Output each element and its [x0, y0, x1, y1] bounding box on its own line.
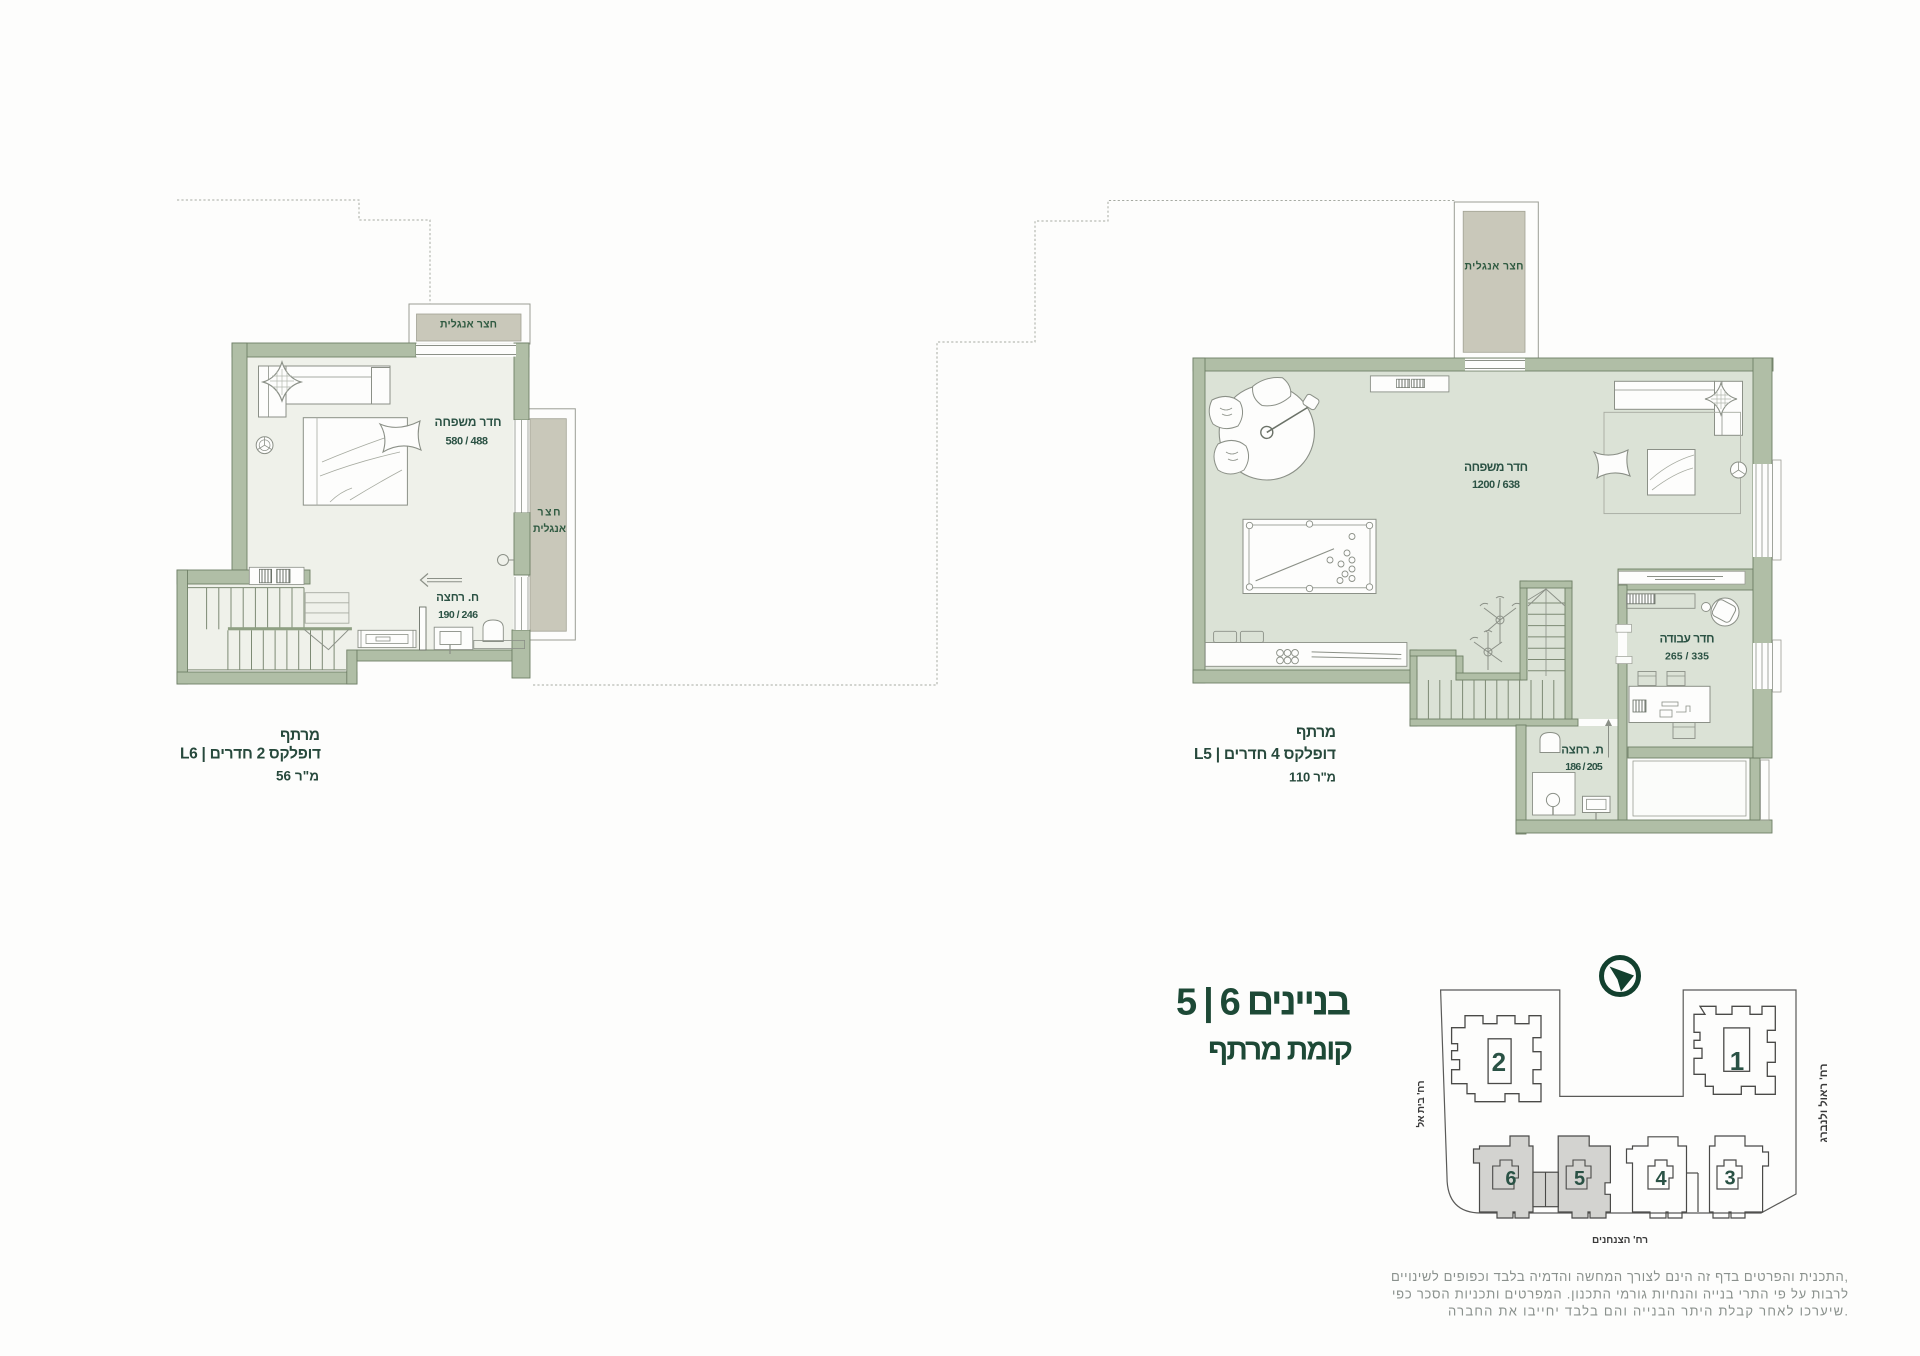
svg-text:1200 / 638: 1200 / 638: [1472, 479, 1520, 491]
svg-text:110 מ"ר: 110 מ"ר: [1289, 770, 1336, 785]
svg-text:דופלקס 2 חדרים | L6: דופלקס 2 חדרים | L6: [180, 746, 321, 763]
svg-text:56 מ"ר: 56 מ"ר: [276, 769, 319, 784]
svg-text:2: 2: [1492, 1047, 1506, 1077]
svg-text:265 / 335: 265 / 335: [1665, 651, 1709, 663]
svg-text:מרתף: מרתף: [1296, 724, 1336, 741]
svg-text:חדר משפחה: חדר משפחה: [435, 415, 502, 429]
svg-text:6: 6: [1505, 1168, 1516, 1190]
svg-text:התכנית והפרטים בדף זה הינם לצו: התכנית והפרטים בדף זה הינם לצורך המחשה ו…: [1391, 1269, 1848, 1284]
svg-text:דופלקס 4 חדרים | L5: דופלקס 4 חדרים | L5: [1194, 746, 1336, 763]
svg-text:חדר משפחה: חדר משפחה: [1464, 460, 1528, 474]
svg-text:לרבות על פי התרי בנייה והנחיות: לרבות על פי התרי בנייה והנחיות גורמי התכ…: [1392, 1287, 1848, 1302]
svg-text:186 / 205: 186 / 205: [1565, 761, 1603, 773]
svg-text:רח' ראול ולנברג: רח' ראול ולנברג: [1817, 1064, 1830, 1143]
svg-text:5: 5: [1574, 1168, 1585, 1190]
svg-text:חצר אנגלית: חצר אנגלית: [1465, 261, 1524, 273]
svg-text:רח' בית אל: רח' בית אל: [1415, 1081, 1427, 1128]
svg-text:שיערכו לאחר קבלת היתר הבנייה ו: שיערכו לאחר קבלת היתר הבנייה והם בלבד יח…: [1448, 1304, 1848, 1319]
svg-text:4: 4: [1655, 1168, 1667, 1190]
svg-text:3: 3: [1724, 1168, 1735, 1190]
svg-text:ח. רחצה: ח. רחצה: [436, 592, 479, 604]
svg-text:בניינים 6 | 5: בניינים 6 | 5: [1176, 982, 1351, 1024]
svg-text:חדר עבודה: חדר עבודה: [1660, 632, 1715, 646]
svg-text:חצר: חצר: [538, 507, 561, 519]
svg-text:580 / 488: 580 / 488: [446, 436, 489, 448]
svg-text:אנגלית: אנגלית: [533, 523, 566, 535]
svg-text:ת. רחצה: ת. רחצה: [1561, 745, 1604, 757]
svg-text:חצר אנגלית: חצר אנגלית: [440, 319, 497, 331]
svg-text:קומת מרתף: קומת מרתף: [1208, 1034, 1353, 1067]
svg-text:מרתף: מרתף: [280, 727, 320, 744]
svg-text:190 / 246: 190 / 246: [438, 609, 478, 621]
svg-text:רח' הצנחנים: רח' הצנחנים: [1592, 1235, 1648, 1246]
svg-text:1: 1: [1730, 1046, 1744, 1076]
